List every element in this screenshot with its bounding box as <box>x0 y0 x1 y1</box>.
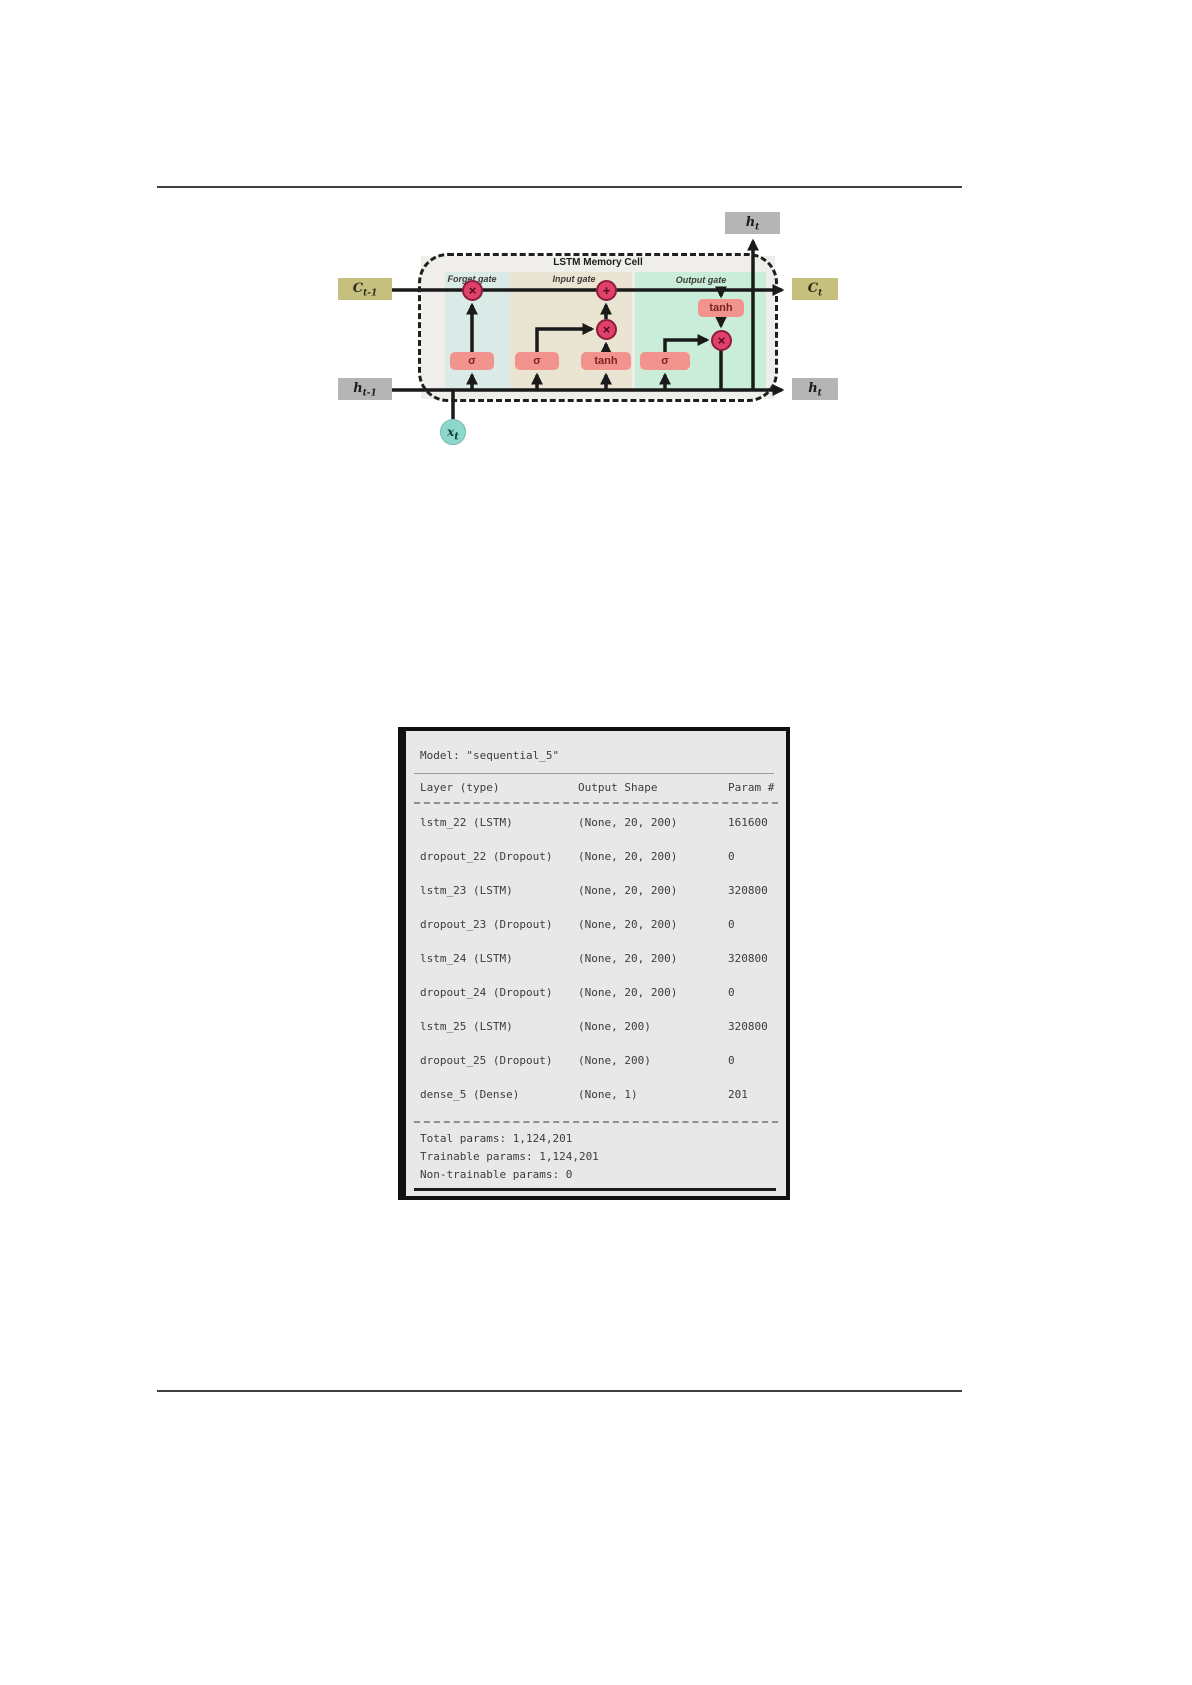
cell-state-next-box: Ct <box>792 278 838 300</box>
x-input-circle: xt <box>440 419 466 445</box>
table-row: lstm_23 (LSTM) (None, 20, 200) 320800 <box>406 884 786 898</box>
forget-sigma-box: σ <box>450 352 494 370</box>
param-count: 320800 <box>728 1020 768 1034</box>
total-params-line: Total params: 1,124,201 <box>420 1132 572 1146</box>
output-shape: (None, 20, 200) <box>578 952 677 966</box>
table-row: lstm_24 (LSTM) (None, 20, 200) 320800 <box>406 952 786 966</box>
layer-name: lstm_25 (LSTM) <box>420 1020 513 1034</box>
cell-state-prev-box: Ct-1 <box>338 278 392 300</box>
summary-bottom-line <box>414 1188 776 1191</box>
document-page: LSTM Memory Cell Forget gate Input gate … <box>0 0 1192 1685</box>
hidden-state-prev-box: ht-1 <box>338 378 392 400</box>
c-prev-sub: t-1 <box>363 289 377 299</box>
param-count: 0 <box>728 1054 735 1068</box>
param-count: 0 <box>728 986 735 1000</box>
table-row: dropout_23 (Dropout) (None, 20, 200) 0 <box>406 918 786 932</box>
param-count: 320800 <box>728 952 768 966</box>
output-shape: (None, 1) <box>578 1088 638 1102</box>
h-top-sub: t <box>755 223 759 233</box>
output-shape: (None, 20, 200) <box>578 884 677 898</box>
output-multiply-op: × <box>711 330 732 351</box>
c-next-label: C <box>808 281 818 296</box>
col-output-shape: Output Shape <box>578 781 657 795</box>
layer-name: dense_5 (Dense) <box>420 1088 519 1102</box>
model-summary-panel: Model: "sequential_5" Layer (type) Outpu… <box>398 727 790 1200</box>
output-shape: (None, 20, 200) <box>578 918 677 932</box>
layer-name: dropout_23 (Dropout) <box>420 918 552 932</box>
bottom-horizontal-rule <box>157 1390 962 1392</box>
layer-name: dropout_25 (Dropout) <box>420 1054 552 1068</box>
non-trainable-params-line: Non-trainable params: 0 <box>420 1168 572 1182</box>
hidden-state-right-box: ht <box>792 378 838 400</box>
col-layer-type: Layer (type) <box>420 781 499 795</box>
add-op: + <box>596 280 617 301</box>
output-gate-label: Output gate <box>656 275 746 285</box>
layer-name: lstm_23 (LSTM) <box>420 884 513 898</box>
output-shape: (None, 200) <box>578 1020 651 1034</box>
param-count: 161600 <box>728 816 768 830</box>
table-row: dropout_24 (Dropout) (None, 20, 200) 0 <box>406 986 786 1000</box>
param-count: 0 <box>728 850 735 864</box>
hidden-state-top-box: ht <box>725 212 780 234</box>
param-count: 320800 <box>728 884 768 898</box>
trainable-params-line: Trainable params: 1,124,201 <box>420 1150 599 1164</box>
output-shape: (None, 20, 200) <box>578 816 677 830</box>
x-input-sub: t <box>454 431 459 442</box>
table-row: lstm_22 (LSTM) (None, 20, 200) 161600 <box>406 816 786 830</box>
table-row: dropout_22 (Dropout) (None, 20, 200) 0 <box>406 850 786 864</box>
output-tanh-box: tanh <box>698 299 744 317</box>
table-row: lstm_25 (LSTM) (None, 200) 320800 <box>406 1020 786 1034</box>
top-horizontal-rule <box>157 186 962 188</box>
layer-name: lstm_24 (LSTM) <box>420 952 513 966</box>
table-row: dense_5 (Dense) (None, 1) 201 <box>406 1088 786 1102</box>
summary-header-row: Layer (type) Output Shape Param # <box>406 781 786 795</box>
h-top-label: h <box>746 215 755 230</box>
c-next-sub: t <box>818 289 822 299</box>
output-shape: (None, 20, 200) <box>578 986 677 1000</box>
param-count: 0 <box>728 918 735 932</box>
h-prev-label: h <box>353 381 362 396</box>
layer-name: dropout_22 (Dropout) <box>420 850 552 864</box>
summary-separator-dashed <box>414 1121 778 1123</box>
output-sigma-box: σ <box>640 352 690 370</box>
layer-name: dropout_24 (Dropout) <box>420 986 552 1000</box>
lstm-memory-cell-figure: LSTM Memory Cell Forget gate Input gate … <box>300 195 860 465</box>
input-multiply-op: × <box>596 319 617 340</box>
model-name-line: Model: "sequential_5" <box>420 749 559 763</box>
input-sigma-box: σ <box>515 352 559 370</box>
figure-title: LSTM Memory Cell <box>418 257 778 268</box>
summary-separator-dashed <box>414 802 778 804</box>
layer-name: lstm_22 (LSTM) <box>420 816 513 830</box>
summary-separator <box>414 773 774 774</box>
h-prev-sub: t-1 <box>363 389 377 399</box>
input-tanh-box: tanh <box>581 352 631 370</box>
param-count: 201 <box>728 1088 748 1102</box>
c-prev-label: C <box>353 281 363 296</box>
h-right-label: h <box>808 381 817 396</box>
table-row: dropout_25 (Dropout) (None, 200) 0 <box>406 1054 786 1068</box>
output-shape: (None, 200) <box>578 1054 651 1068</box>
h-right-sub: t <box>818 389 822 399</box>
col-param-count: Param # <box>728 781 774 795</box>
output-shape: (None, 20, 200) <box>578 850 677 864</box>
forget-multiply-op: × <box>462 280 483 301</box>
